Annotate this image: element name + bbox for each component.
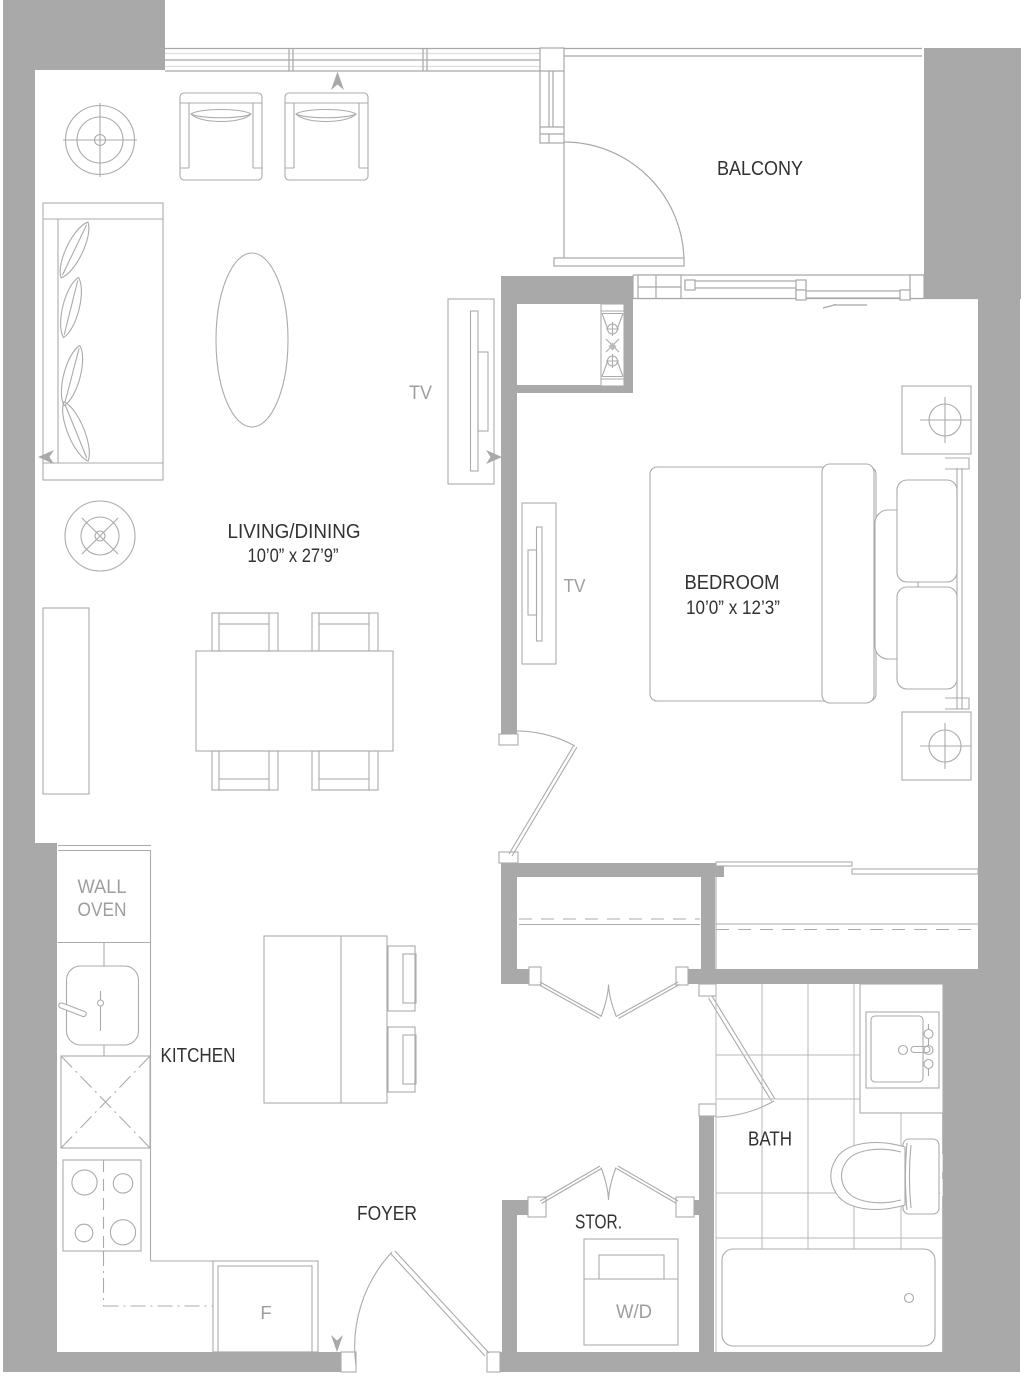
svg-text:W/D: W/D <box>616 1302 652 1323</box>
svg-text:STOR.: STOR. <box>575 1211 622 1234</box>
svg-text:WALL: WALL <box>78 877 127 898</box>
svg-text:10’0” x 12’3”: 10’0” x 12’3” <box>686 597 780 619</box>
svg-text:OVEN: OVEN <box>78 900 127 921</box>
svg-text:TV: TV <box>564 576 586 596</box>
svg-text:KITCHEN: KITCHEN <box>161 1044 236 1067</box>
svg-text:BALCONY: BALCONY <box>717 157 803 180</box>
svg-text:BATH: BATH <box>748 1128 792 1151</box>
svg-text:LIVING/DINING: LIVING/DINING <box>228 520 361 543</box>
svg-text:FOYER: FOYER <box>357 1202 417 1225</box>
svg-text:10’0” x 27’9”: 10’0” x 27’9” <box>248 545 339 567</box>
svg-text:BEDROOM: BEDROOM <box>685 571 780 594</box>
svg-text:TV: TV <box>409 383 432 404</box>
svg-text:F: F <box>260 1302 271 1323</box>
